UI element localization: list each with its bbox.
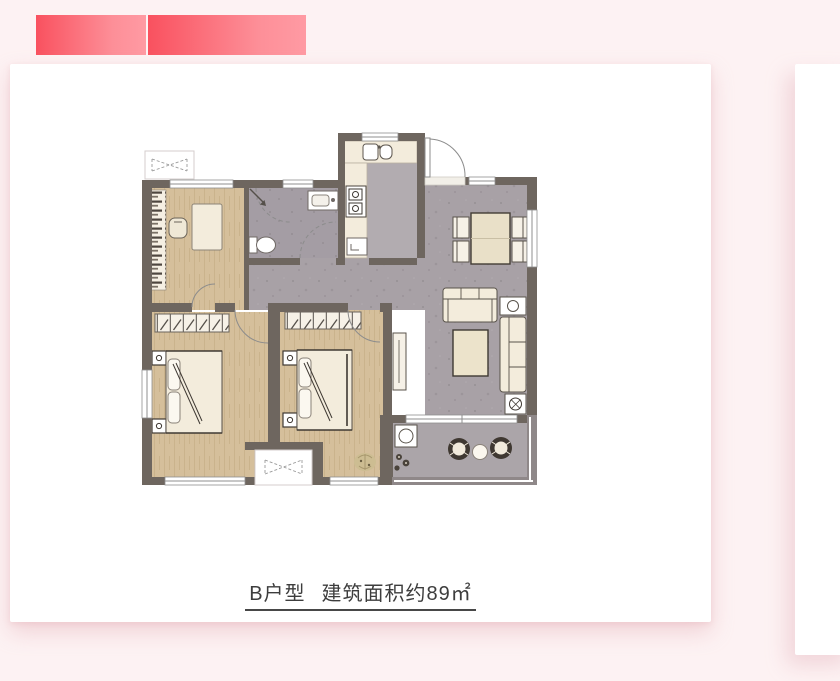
- pillow-icon: [299, 358, 311, 387]
- area-label: 建筑面积约89㎡: [322, 582, 472, 606]
- nightstand-icon: [283, 351, 297, 365]
- next-slide-card[interactable]: [795, 64, 840, 655]
- page-root: B户型 建筑面积约89㎡: [0, 0, 840, 681]
- ac-unit-icon: [255, 450, 312, 485]
- window-icon: [165, 477, 245, 485]
- banner-block-1[interactable]: [36, 15, 146, 55]
- window-icon: [283, 180, 313, 188]
- dining-chair-icon: [512, 241, 527, 262]
- wardrobe-icon: [155, 314, 229, 332]
- dining-set: [453, 213, 527, 264]
- console-desk-icon: [393, 333, 406, 390]
- plant-icon: [354, 453, 376, 471]
- top-banner: [0, 0, 840, 64]
- floorplan-slide-card[interactable]: B户型 建筑面积约89㎡: [10, 64, 711, 622]
- banner-block-2[interactable]: [148, 15, 306, 55]
- sliding-door-icon: [406, 415, 517, 423]
- bookshelf-icon: [150, 190, 166, 290]
- toilet-bowl-icon: [257, 237, 276, 253]
- window-icon: [330, 477, 378, 485]
- pillow-icon: [168, 392, 180, 423]
- nightstand-icon: [152, 351, 166, 365]
- window-icon: [170, 180, 233, 188]
- floorplan-caption: B户型 建筑面积约89㎡: [10, 582, 711, 611]
- dining-chair-icon: [512, 217, 527, 238]
- floorplan-caption-text: B户型 建筑面积约89㎡: [245, 582, 476, 611]
- kitchen-sink-icon: [363, 144, 378, 160]
- floor-plan-container: [132, 118, 552, 488]
- corner-table-icon: [500, 297, 526, 315]
- chair-icon: [169, 218, 187, 238]
- nightstand-icon: [283, 413, 297, 427]
- entry-door-arc: [430, 139, 465, 177]
- balcony-table-icon: [473, 445, 488, 460]
- hallway-floor: [244, 258, 425, 310]
- ac-unit-icon: [145, 151, 194, 179]
- window-icon: [142, 370, 152, 418]
- sofa-icon: [443, 288, 497, 322]
- pillow-icon: [299, 389, 311, 418]
- window-icon: [362, 133, 398, 141]
- rattan-chair-icon: [448, 438, 470, 460]
- nightstand-icon: [152, 419, 166, 433]
- desk-icon: [192, 204, 222, 250]
- floor-plan-image: [132, 118, 552, 488]
- chaise-sofa-icon: [500, 317, 526, 392]
- entry-threshold: [425, 177, 465, 185]
- window-icon: [469, 177, 495, 185]
- entry-door-leaf: [425, 138, 430, 177]
- dining-chair-icon: [453, 241, 469, 262]
- coffee-table-icon: [453, 330, 488, 376]
- window-icon: [527, 210, 537, 267]
- toilet-tank-icon: [249, 237, 257, 253]
- kitchen-cabinet-icon: [347, 238, 367, 255]
- rattan-chair-icon: [490, 437, 512, 459]
- dining-chair-icon: [453, 217, 469, 238]
- unit-type-label: B户型: [249, 582, 305, 606]
- washing-machine-icon: [395, 425, 417, 447]
